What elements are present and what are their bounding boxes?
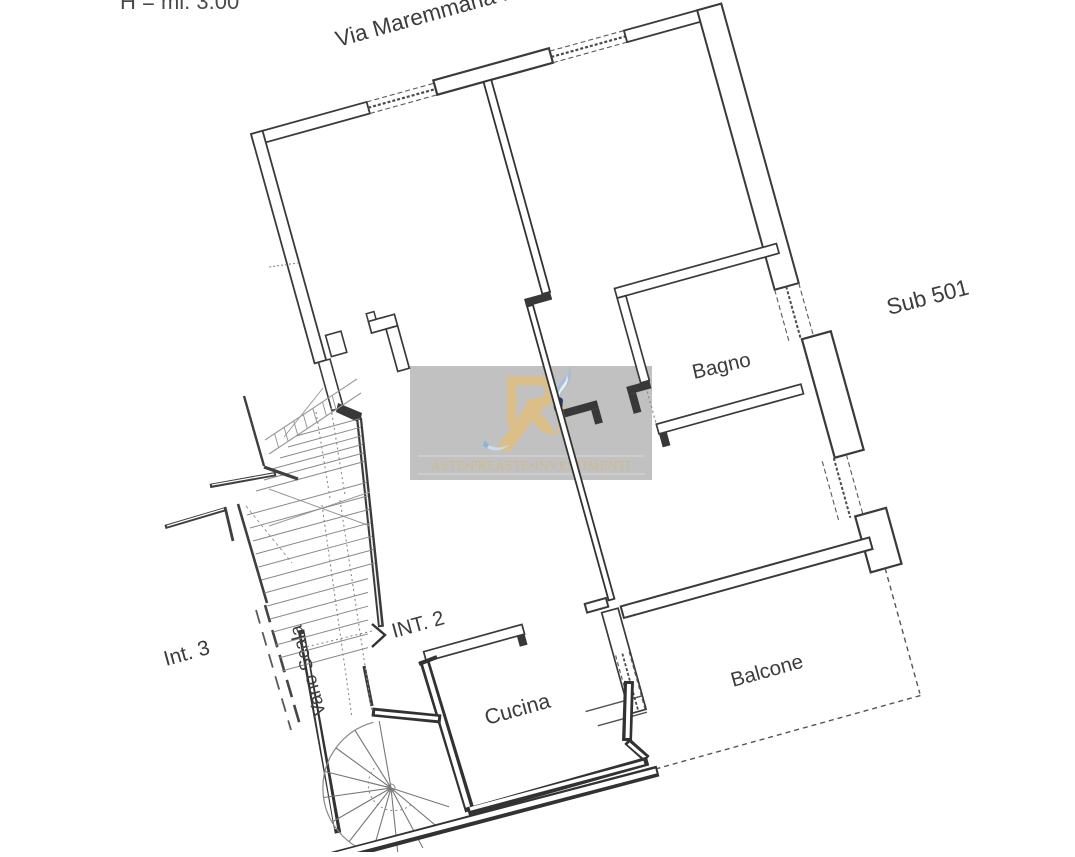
svg-text:ASTE•PREASTE•INVESTIMENTI: ASTE•PREASTE•INVESTIMENTI bbox=[431, 458, 631, 473]
svg-text:H = ml. 3.00: H = ml. 3.00 bbox=[120, 0, 239, 14]
